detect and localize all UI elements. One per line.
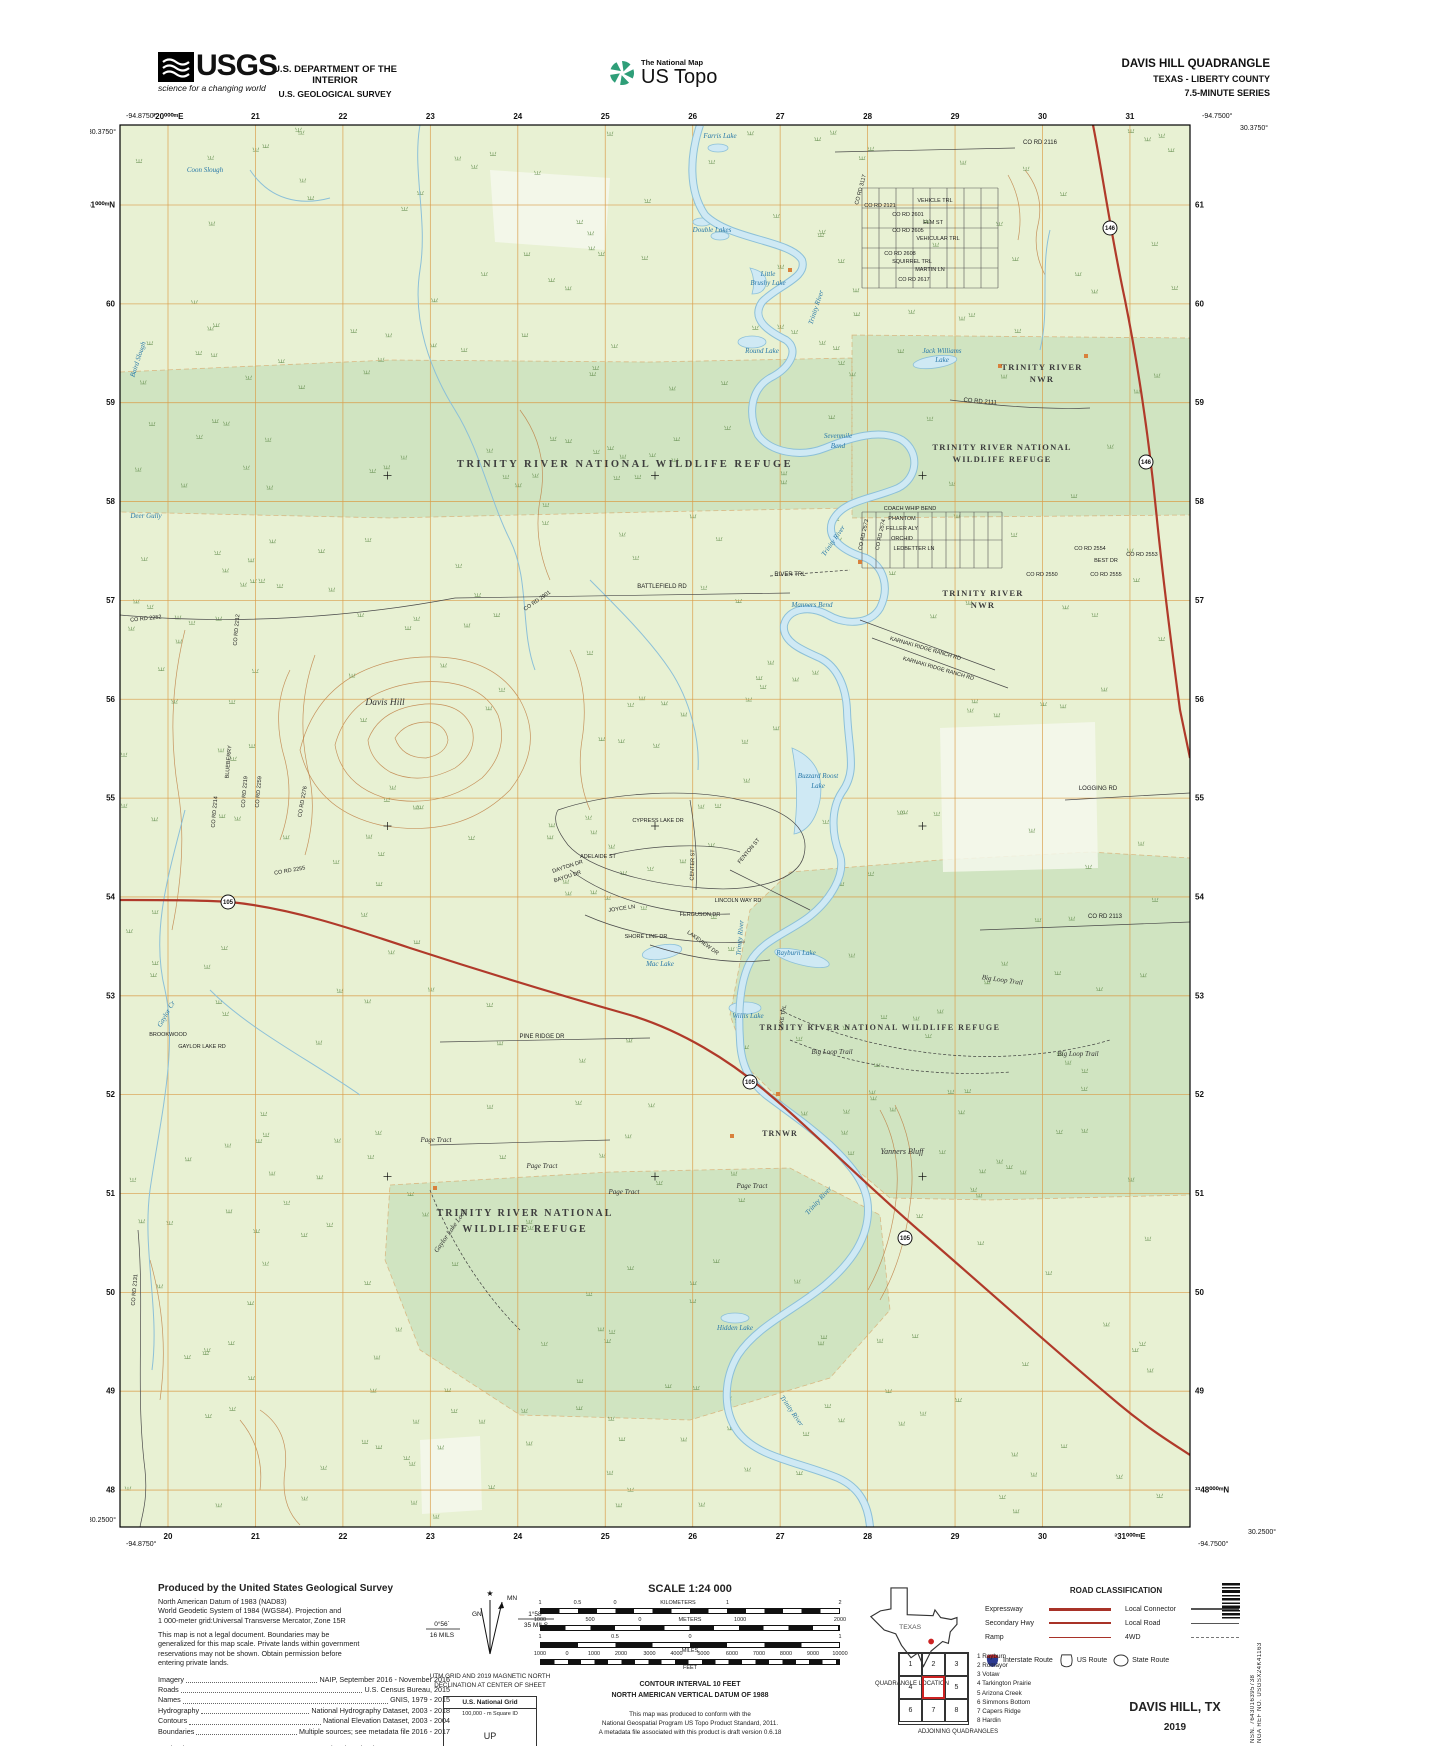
contour-interval-note: CONTOUR INTERVAL 10 FEETNORTH AMERICAN V… — [520, 1680, 860, 1701]
ustopo-logo: The National Map US Topo — [608, 58, 717, 87]
grid-label-left: 55 — [106, 794, 115, 803]
grid-label-bottom: ³31⁰⁰⁰ᵐE — [1114, 1532, 1146, 1541]
grid-label-left: 54 — [106, 892, 115, 901]
adjoining-name: 8 Hardin — [977, 1716, 1031, 1725]
grid-label-bottom: 23 — [426, 1532, 435, 1541]
scale-tick: 2000 — [615, 1651, 627, 1657]
grid-label-left: 49 — [106, 1387, 115, 1396]
map-label: Farris Lake — [702, 132, 736, 140]
grid-label-top: 21 — [251, 112, 260, 121]
scale-title: SCALE 1:24 000 — [520, 1583, 860, 1595]
map-label: Page Tract — [526, 1162, 559, 1170]
grid-label-top: 25 — [601, 112, 610, 121]
scale-tick: 4000 — [670, 1651, 682, 1657]
road-class-sample — [1049, 1637, 1111, 1638]
dept-line2: U.S. GEOLOGICAL SURVEY — [250, 89, 420, 99]
road-class-label: Secondary Hwy — [985, 1620, 1049, 1627]
map-label: Jack Williams — [922, 347, 961, 355]
grid-label-right: 59 — [1195, 398, 1204, 407]
scale-tick: 3000 — [643, 1651, 655, 1657]
source-label: Names — [158, 1695, 181, 1705]
building — [858, 560, 862, 564]
adjoining-cell: 1 — [899, 1653, 922, 1676]
scale-tick: 0.5 — [611, 1634, 619, 1640]
grid-label-left: 51 — [106, 1189, 115, 1198]
scale-tick: 0 — [613, 1600, 616, 1606]
adjoining-cell: 8 — [945, 1699, 968, 1722]
grid-label-top: 28 — [863, 112, 872, 121]
map-label: CO RD 2553 — [1126, 552, 1158, 558]
map-label: FERGUSON DR — [680, 912, 721, 918]
map-label: LOGGING RD — [1079, 786, 1118, 792]
adjoining-names: 1 Rayburn2 Romayor3 Votaw4 Tarkington Pr… — [977, 1652, 1031, 1725]
scale-bars: 10.50KILOMETERS1210005000METERS100020001… — [520, 1600, 860, 1668]
map-label: CO RD 2617 — [898, 277, 930, 283]
scale-tick: 1000 — [534, 1651, 546, 1657]
grid-label-bottom: 27 — [776, 1532, 785, 1541]
grid-label-bottom: 25 — [601, 1532, 610, 1541]
scale-tick: 1000 — [734, 1617, 746, 1623]
dept-line1: U.S. DEPARTMENT OF THE INTERIOR — [250, 64, 420, 86]
scale-tick: 1000 — [588, 1651, 600, 1657]
texas-label: TEXAS — [899, 1624, 921, 1631]
grid-label-right: 61 — [1195, 201, 1204, 210]
map-label: CO RD 2550 — [1026, 572, 1058, 578]
map-label: NWR — [971, 600, 995, 610]
map-label: Page Tract — [420, 1136, 453, 1144]
scale-tick: 8000 — [780, 1651, 792, 1657]
nsn-number: NSN. 7643016395738 — [1250, 1583, 1256, 1743]
usgs-topo-sheet: USGS science for a changing world U.S. D… — [0, 0, 1445, 1746]
department-heading: U.S. DEPARTMENT OF THE INTERIOR U.S. GEO… — [250, 64, 420, 99]
grid-label-top: 22 — [338, 112, 347, 121]
scale-bar-row: 1000010002000300040005000600070008000900… — [540, 1651, 840, 1668]
grid-label-top: ³20⁰⁰⁰ᵐE — [152, 112, 184, 121]
corner-coordinate: -94.8750° — [126, 1540, 157, 1548]
map-label: CO RD 2555 — [1090, 572, 1122, 578]
road-class-label: 4WD — [1125, 1634, 1191, 1641]
corner-coordinate: 30.3750° — [90, 128, 116, 136]
map-label: TRINITY RIVER — [1001, 362, 1082, 372]
road-class-label: Local Connector — [1125, 1606, 1191, 1613]
map-label: CO RD 2113 — [1088, 914, 1123, 920]
grid-label-bottom: 28 — [863, 1532, 872, 1541]
map-label: GAYLOR LAKE RD — [178, 1044, 226, 1050]
source-label: Imagery — [158, 1675, 184, 1685]
adjoining-name: 4 Tarkington Prairie — [977, 1679, 1031, 1688]
adjoining-name: 5 Arizona Creek — [977, 1689, 1031, 1698]
scale-bar — [540, 1608, 840, 1614]
adjoining-cell-current — [922, 1676, 945, 1699]
scale-unit: FEET — [683, 1665, 697, 1671]
scale-tick: 5000 — [697, 1651, 709, 1657]
adjoining-cell: 6 — [899, 1699, 922, 1722]
quadrangle-name: DAVIS HILL QUADRANGLE — [1005, 58, 1270, 70]
map-label: PINE RIDGE DR — [519, 1034, 565, 1040]
map-label: NWR — [1030, 374, 1054, 384]
road-class-sample — [1049, 1608, 1111, 1611]
grid-label-left: 59 — [106, 398, 115, 407]
sheet-year: 2019 — [1095, 1722, 1255, 1733]
scale-tick: 0 — [638, 1617, 641, 1623]
map-label: BEST DR — [1094, 558, 1118, 564]
corner-coordinate: 30.3750° — [1240, 124, 1268, 132]
grid-label-right: 57 — [1195, 596, 1204, 605]
adjoining-caption: ADJOINING QUADRANGLES — [898, 1729, 1018, 1735]
grid-label-left: 50 — [106, 1288, 115, 1297]
map-label: Page Tract — [608, 1188, 641, 1196]
corner-coordinate: 30.2500° — [90, 1516, 116, 1524]
grid-label-left: 48 — [106, 1486, 115, 1495]
road-class-title: ROAD CLASSIFICATION — [985, 1586, 1247, 1595]
map-label: TRNWR — [762, 1129, 798, 1138]
scale-tick: 1 — [726, 1600, 729, 1606]
road-class-row: ExpresswayLocal Connector — [985, 1602, 1247, 1616]
map-label: Page Tract — [736, 1182, 769, 1190]
map-label: Round Lake — [744, 347, 779, 355]
grid-label-bottom: 30 — [1038, 1532, 1047, 1541]
map-label: CO RD 2601 — [892, 212, 924, 218]
grid-label-right: 51 — [1195, 1189, 1204, 1198]
dotted-leader — [189, 1724, 321, 1725]
route-shield-number: 146 — [1105, 226, 1116, 232]
scale-tick: 10000 — [832, 1651, 847, 1657]
map-label: Davis Hill — [364, 698, 405, 708]
quadrangle-series: 7.5-MINUTE SERIES — [1005, 88, 1270, 98]
map-label: Yanners Bluff — [880, 1147, 925, 1156]
road-class-sample — [1191, 1623, 1239, 1624]
state-route-circle-icon — [1113, 1654, 1129, 1667]
grid-label-left: ³³61⁰⁰⁰ᵐN — [90, 201, 115, 210]
map-label: MARTIN LN — [915, 267, 945, 273]
map-label: BATTLEFIELD RD — [637, 584, 687, 590]
scale-tick: 1 — [538, 1600, 541, 1606]
grid-label-left: 58 — [106, 497, 115, 506]
nga-ref-number: NGA REF NO. USGSX24K41163 — [1257, 1583, 1263, 1743]
us-route-item: US Route — [1059, 1653, 1107, 1668]
grid-label-bottom: 24 — [513, 1532, 522, 1541]
corner-coordinate: 30.2500° — [1248, 1528, 1276, 1536]
grid-label-top: 31 — [1125, 112, 1134, 121]
quad-location-dot — [928, 1639, 934, 1645]
building — [1084, 354, 1088, 358]
map-label: Manners Bend — [790, 601, 833, 609]
road-class-label: Expressway — [985, 1606, 1049, 1613]
svg-text:0°56´: 0°56´ — [434, 1620, 450, 1628]
scale-tick: 0 — [688, 1634, 691, 1640]
source-label: Roads — [158, 1685, 179, 1695]
ustopo-wordmark: US Topo — [641, 67, 717, 87]
grid-label-top: 23 — [426, 112, 435, 121]
barcode — [1222, 1583, 1242, 1619]
grid-label-top: 30 — [1038, 112, 1047, 121]
map-label: COACH WHIP BEND — [884, 506, 936, 512]
map-label: SHORE LINE DR — [625, 934, 668, 940]
us-route-label: US Route — [1077, 1657, 1107, 1664]
scale-tick: METERS — [679, 1617, 702, 1623]
grid-label-top: 27 — [776, 112, 785, 121]
route-shield-number: 105 — [745, 1080, 756, 1086]
adjoining-name: 2 Romayor — [977, 1661, 1031, 1670]
road-class-label: Local Road — [1125, 1620, 1191, 1627]
scale-tick: 0.5 — [574, 1600, 582, 1606]
scale-tick: 2 — [838, 1600, 841, 1606]
grid-label-left: 56 — [106, 695, 115, 704]
corner-coordinate: -94.7500° — [1202, 112, 1233, 120]
map-label: Double Lakes — [692, 226, 732, 234]
adjoining-cell: 5 — [945, 1676, 968, 1699]
grid-label-left: 52 — [106, 1090, 115, 1099]
route-shield-number: 146 — [1141, 460, 1152, 466]
road-class-row: Secondary HwyLocal Road — [985, 1616, 1247, 1630]
scale-tick: 1 — [538, 1634, 541, 1640]
scale-tick: 7000 — [753, 1651, 765, 1657]
adjoining-name: 3 Votaw — [977, 1670, 1031, 1679]
map-label: TRINITY RIVER — [942, 588, 1023, 598]
grid-label-bottom: 29 — [951, 1532, 960, 1541]
map-label: VEHICLE TRL — [917, 198, 952, 204]
scale-tick: KILOMETERS — [660, 1600, 695, 1606]
corner-coordinate: -94.8750° — [126, 112, 157, 120]
grid-label-right: 49 — [1195, 1387, 1204, 1396]
adjoining-quadrangles: 12345678 1 Rayburn2 Romayor3 Votaw4 Tark… — [898, 1652, 1058, 1735]
product-standard-note: This map was produced to conform with th… — [520, 1710, 860, 1737]
ustopo-pinwheel-icon — [608, 59, 636, 87]
source-label: Contours — [158, 1716, 187, 1726]
map-label: Hidden Lake — [716, 1324, 753, 1332]
grid-label-right: 54 — [1195, 892, 1204, 901]
usgs-wave-icon — [158, 52, 194, 82]
map-label: RIVER TRL — [774, 572, 806, 578]
map-label: CO RD 2608 — [884, 251, 916, 257]
route-shield-number: 105 — [900, 1236, 911, 1242]
scale-tick: 500 — [586, 1617, 595, 1623]
grid-label-right: 60 — [1195, 299, 1204, 308]
source-label: Hydrography — [158, 1706, 199, 1716]
source-label: Boundaries — [158, 1727, 194, 1737]
scale-tick: 2000 — [834, 1617, 846, 1623]
map-label: Willis Lake — [732, 1012, 763, 1020]
map-label: CO RD 2121 — [864, 203, 896, 209]
scale-bar — [540, 1625, 840, 1631]
map-label: BROOKWOOD — [149, 1032, 187, 1038]
adjoining-name: 1 Rayburn — [977, 1652, 1031, 1661]
map-label: TRINITY RIVER NATIONAL — [932, 442, 1071, 452]
map-label: Bend — [831, 442, 846, 450]
map-label: PHANTOM — [888, 516, 916, 522]
grid-label-bottom: 26 — [688, 1532, 697, 1541]
nsn-reference: NSN. 7643016395738 NGA REF NO. USGSX24K4… — [1250, 1583, 1263, 1743]
grid-label-bottom: 20 — [164, 1532, 173, 1541]
dotted-leader — [183, 1703, 388, 1704]
corner-coordinate: -94.7500° — [1198, 1540, 1229, 1548]
topo-map-canvas: Coon SloughFarris LakeDouble LakesTrinit… — [90, 110, 1285, 1565]
sheet-name: DAVIS HILL, TX — [1095, 1700, 1255, 1714]
road-class-row: Ramp4WD — [985, 1630, 1247, 1644]
map-label: ELM ST — [923, 220, 944, 226]
adjoining-grid: 12345678 — [898, 1652, 969, 1725]
quadrangle-state: TEXAS - LIBERTY COUNTY — [1005, 74, 1270, 84]
adjoining-name: 7 Capers Ridge — [977, 1707, 1031, 1716]
grid-label-left: 57 — [106, 596, 115, 605]
map-label: ADELAIDE ST — [580, 854, 616, 860]
adjoining-cell: 7 — [922, 1699, 945, 1722]
grid-label-right: 58 — [1195, 497, 1204, 506]
grid-label-right: 52 — [1195, 1090, 1204, 1099]
svg-text:★: ★ — [486, 1589, 493, 1598]
map-label: Mac Lake — [645, 960, 674, 968]
map-label: Brushy Lake — [750, 279, 785, 287]
map-label: Lake — [810, 782, 825, 790]
road-class-rows: ExpresswayLocal ConnectorSecondary HwyLo… — [985, 1602, 1247, 1644]
scale-bar-row: 10005000METERS10002000 — [540, 1617, 840, 1634]
dotted-leader — [196, 1734, 297, 1735]
dotted-leader — [181, 1692, 363, 1693]
grid-label-right: ³³48⁰⁰⁰ᵐN — [1195, 1486, 1229, 1495]
scale-bar-row: 10.501MILES — [540, 1634, 840, 1651]
map-label: CENTER ST — [689, 849, 696, 881]
scale-tick: 0 — [565, 1651, 568, 1657]
map-label: CO RD 2554 — [1074, 546, 1106, 552]
svg-text:MN: MN — [507, 1595, 517, 1602]
map-label: Big Loop Trail — [811, 1048, 852, 1056]
svg-text:GN: GN — [472, 1611, 482, 1618]
road-class-sample — [1191, 1637, 1239, 1638]
scale-block: SCALE 1:24 000 10.50KILOMETERS1210005000… — [520, 1583, 860, 1737]
scale-tick: 1000 — [534, 1617, 546, 1623]
map-label: SQUIRREL TRL — [892, 259, 932, 265]
map-label: Sevenmile — [824, 432, 852, 440]
state-route-label: State Route — [1132, 1657, 1169, 1664]
map-label: Big Loop Trail — [1057, 1050, 1098, 1058]
road-class-sample — [1049, 1622, 1111, 1624]
map-label: WILDLIFE REFUGE — [953, 454, 1052, 464]
grid-label-right: 50 — [1195, 1288, 1204, 1297]
map-label: Rayburn Lake — [775, 949, 815, 957]
road-class-label: Ramp — [985, 1634, 1049, 1641]
scale-tick: 1 — [838, 1634, 841, 1640]
svg-text:16 MILS: 16 MILS — [430, 1632, 455, 1639]
map-label: Little — [760, 270, 776, 278]
route-shield-number: 105 — [223, 900, 234, 906]
map-label: CO RD 2116 — [1023, 140, 1058, 146]
state-route-item: State Route — [1113, 1654, 1169, 1667]
scale-tick: 9000 — [807, 1651, 819, 1657]
map-label: CO RD 2605 — [892, 228, 924, 234]
dotted-leader — [186, 1682, 318, 1683]
grid-label-top: 29 — [951, 112, 960, 121]
map-label: Lake — [934, 356, 949, 364]
map-label: TRINITY RIVER NATIONAL WILDLIFE REFUGE — [457, 459, 793, 470]
map-label: VEHICULAR TRL — [916, 236, 959, 242]
adjoining-cell: 2 — [922, 1653, 945, 1676]
map-label: LEDBETTER LN — [894, 546, 935, 552]
grid-label-right: 53 — [1195, 991, 1204, 1000]
building — [776, 1092, 780, 1096]
map-label: ORCHID — [891, 536, 913, 542]
building — [788, 268, 792, 272]
us-route-shield-icon — [1059, 1653, 1074, 1668]
map-label: LINCOLN WAY RD — [715, 898, 762, 904]
grid-label-right: 55 — [1195, 794, 1204, 803]
building — [730, 1134, 734, 1138]
scale-tick: 6000 — [726, 1651, 738, 1657]
adjoining-name: 6 Simmons Bottom — [977, 1698, 1031, 1707]
adjoining-cell: 3 — [945, 1653, 968, 1676]
grid-label-left: 53 — [106, 991, 115, 1000]
building — [433, 1186, 437, 1190]
map-label: WILDLIFE REFUGE — [462, 1224, 587, 1235]
grid-label-top: 24 — [513, 112, 522, 121]
grid-label-bottom: 21 — [251, 1532, 260, 1541]
map-label: CYPRESS LAKE DR — [632, 818, 683, 824]
dotted-leader — [201, 1713, 309, 1714]
grid-label-left: 60 — [106, 299, 115, 308]
sheet-title-block: DAVIS HILL, TX 2019 — [1095, 1700, 1255, 1733]
map-label: Coon Slough — [187, 166, 224, 174]
quadrangle-title-block: DAVIS HILL QUADRANGLE TEXAS - LIBERTY CO… — [1005, 58, 1270, 98]
grid-label-right: 56 — [1195, 695, 1204, 704]
adjoining-cell: 4 — [899, 1676, 922, 1699]
map-label: Buzzard Roost — [798, 772, 839, 780]
map-label: Deer Gully — [129, 512, 162, 520]
map-label: TRINITY RIVER NATIONAL WILDLIFE REFUGE — [760, 1023, 1001, 1032]
grid-label-bottom: 22 — [338, 1532, 347, 1541]
grid-label-top: 26 — [688, 112, 697, 121]
map-label: FELLER ALY — [886, 526, 918, 532]
scale-bar-row: 10.50KILOMETERS12 — [540, 1600, 840, 1617]
